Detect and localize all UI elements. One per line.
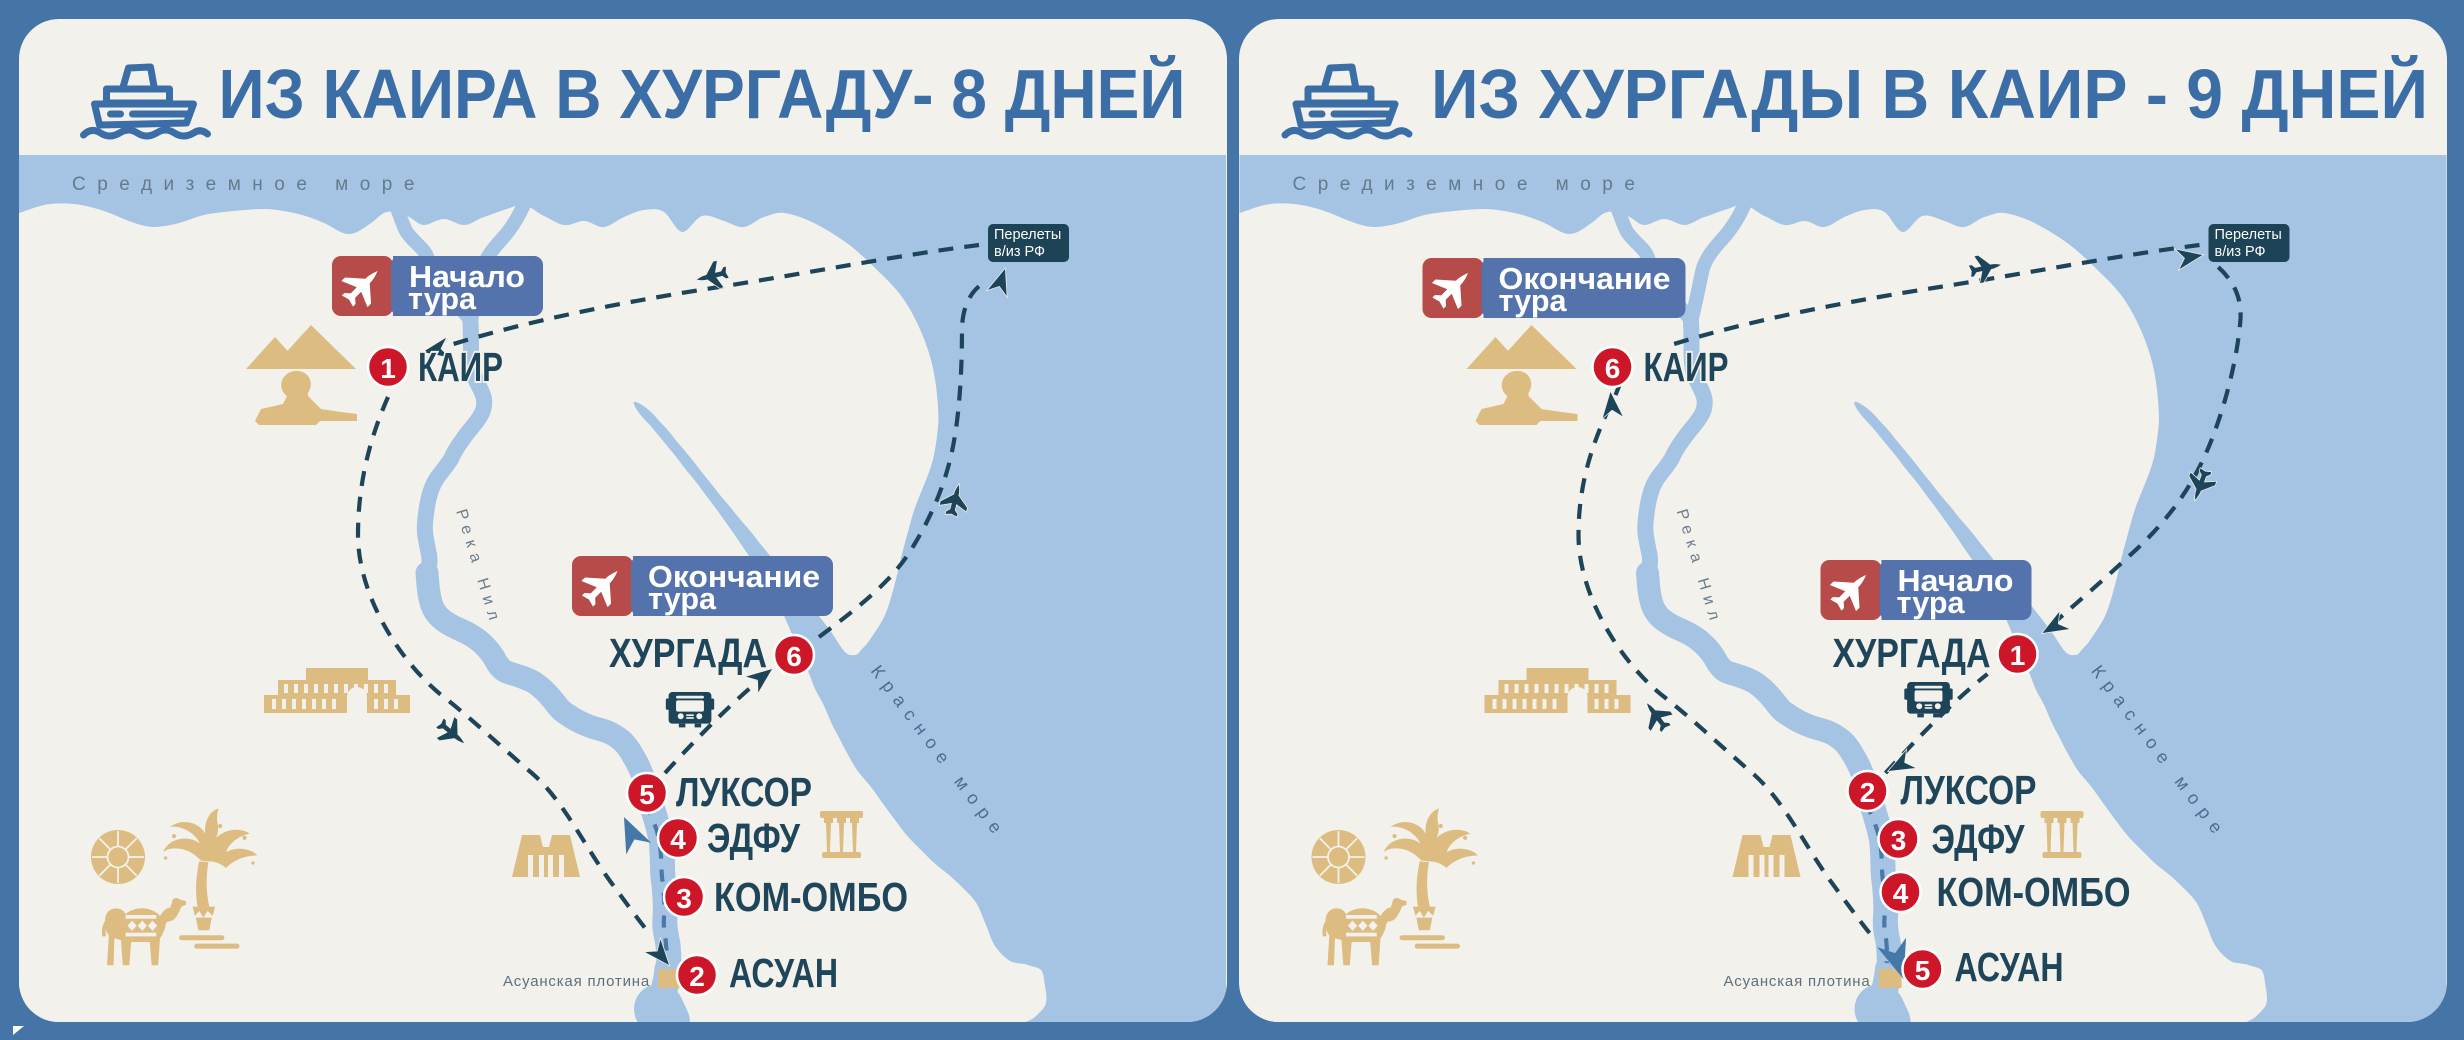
svg-text:4: 4 [1893, 878, 1909, 909]
svg-text:тура: тура [1897, 585, 1966, 620]
svg-text:5: 5 [1915, 955, 1931, 986]
svg-text:тура: тура [648, 581, 717, 616]
svg-text:1: 1 [2010, 640, 2026, 671]
svg-text:ХУРГАДА: ХУРГАДА [1833, 630, 1991, 676]
svg-text:АСУАН: АСУАН [1955, 944, 2064, 990]
svg-text:КАИР: КАИР [1644, 344, 1729, 390]
svg-text:тура: тура [408, 281, 477, 316]
svg-text:1: 1 [380, 353, 396, 384]
svg-text:3: 3 [676, 883, 692, 914]
svg-text:2: 2 [1860, 777, 1876, 808]
svg-text:2: 2 [689, 961, 705, 992]
svg-text:КОМ-ОМБО: КОМ-ОМБО [1937, 869, 2131, 915]
svg-text:тура: тура [1499, 283, 1568, 318]
svg-text:5: 5 [639, 779, 655, 810]
svg-text:ЭДФУ: ЭДФУ [1932, 816, 2025, 862]
svg-text:6: 6 [786, 641, 802, 672]
svg-text:ИЗ ХУРГАДЫ В КАИР - 9 ДНЕЙ: ИЗ ХУРГАДЫ В КАИР - 9 ДНЕЙ [1431, 54, 2428, 133]
svg-text:ЛУКСОР: ЛУКСОР [1901, 767, 2037, 813]
svg-text:3: 3 [1891, 825, 1907, 856]
svg-text:4: 4 [670, 824, 686, 855]
svg-text:ИЗ КАИРА В ХУРГАДУ- 8 ДНЕЙ: ИЗ КАИРА В ХУРГАДУ- 8 ДНЕЙ [219, 54, 1186, 133]
svg-text:6: 6 [1605, 353, 1621, 384]
